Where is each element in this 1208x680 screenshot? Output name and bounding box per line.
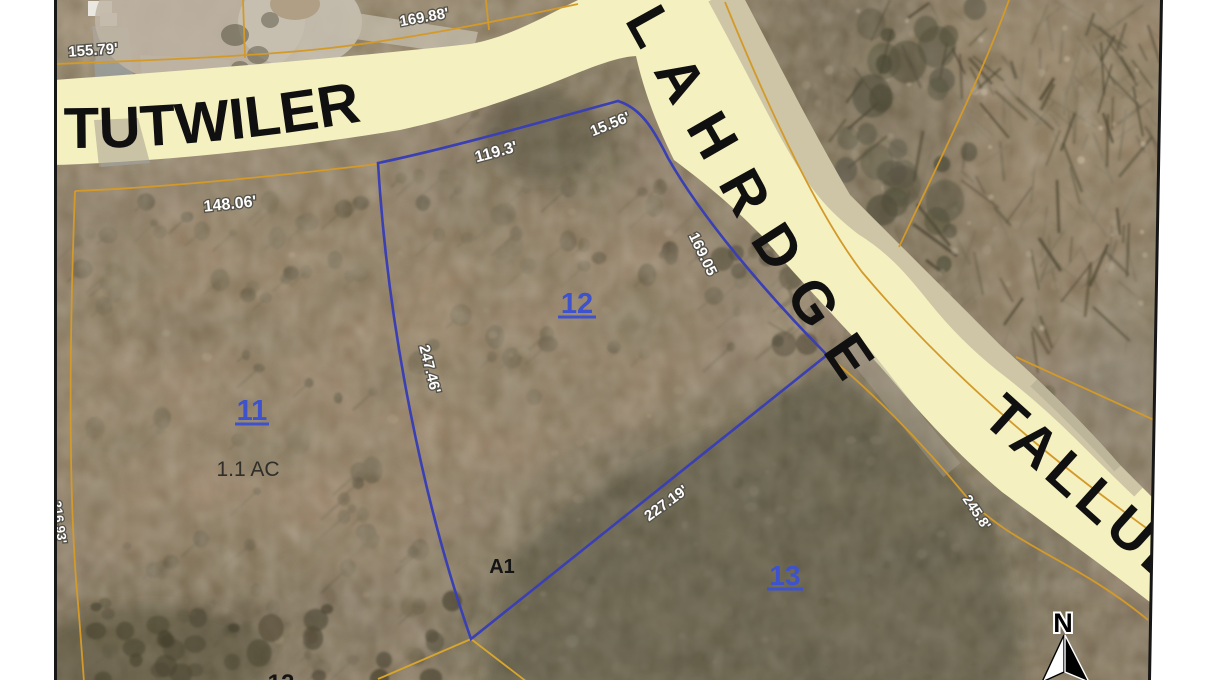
svg-text:11: 11 [237, 395, 268, 427]
svg-text:12: 12 [268, 670, 295, 680]
svg-text:12: 12 [561, 288, 593, 320]
svg-text:13: 13 [769, 560, 800, 591]
svg-text:N: N [1053, 608, 1073, 638]
svg-text:155.79': 155.79' [68, 40, 119, 60]
svg-text:A1: A1 [489, 556, 515, 578]
svg-text:1.1 AC: 1.1 AC [216, 458, 279, 481]
